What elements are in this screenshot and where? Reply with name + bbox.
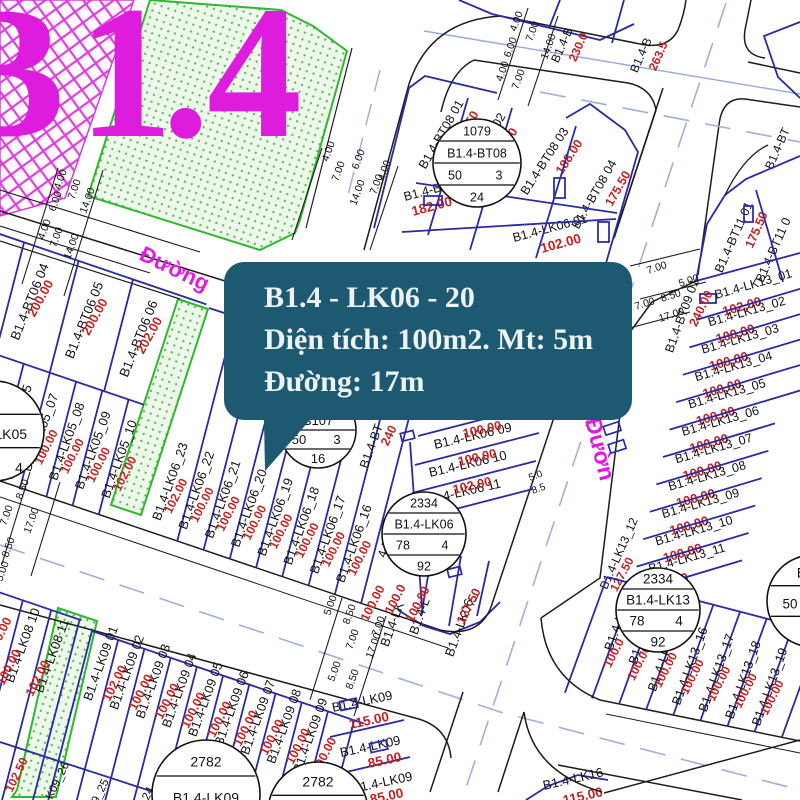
svg-text:2782: 2782	[302, 774, 333, 790]
svg-text:4: 4	[675, 614, 683, 629]
svg-text:1: 1	[78, 0, 173, 178]
svg-text:B1.4-LK05: B1.4-LK05	[0, 426, 27, 442]
svg-text:Diện tích: 100m2. Mt: 5m: Diện tích: 100m2. Mt: 5m	[264, 323, 593, 356]
svg-text:78: 78	[396, 539, 410, 553]
svg-text:4: 4	[207, 0, 302, 178]
svg-text:2334: 2334	[643, 572, 674, 587]
svg-text:50: 50	[782, 596, 797, 611]
svg-text:Đường: 17m: Đường: 17m	[264, 365, 424, 398]
svg-text:92: 92	[417, 560, 431, 574]
svg-text:3: 3	[496, 168, 503, 182]
svg-text:16: 16	[311, 451, 325, 466]
svg-text:B1.4 - LK06 - 20: B1.4 - LK06 - 20	[264, 281, 475, 314]
svg-text:92: 92	[650, 635, 665, 650]
svg-text:B1.4-BT08: B1.4-BT08	[447, 146, 507, 160]
svg-text:78: 78	[629, 614, 644, 629]
svg-text:B: B	[0, 0, 65, 178]
svg-text:50: 50	[448, 168, 462, 182]
svg-text:3: 3	[333, 432, 340, 447]
svg-text:2782: 2782	[190, 754, 221, 770]
svg-text:2334: 2334	[410, 497, 438, 511]
svg-text:B1.4-LK09: B1.4-LK09	[173, 790, 239, 800]
svg-text:4: 4	[442, 539, 449, 553]
svg-text:1079: 1079	[463, 124, 491, 138]
svg-text:B1.4-LK06: B1.4-LK06	[394, 518, 453, 532]
svg-text:24: 24	[470, 190, 484, 204]
svg-text:B1.4-LK13: B1.4-LK13	[626, 593, 690, 608]
svg-text:4: 4	[15, 459, 23, 475]
svg-text:.: .	[162, 0, 210, 178]
